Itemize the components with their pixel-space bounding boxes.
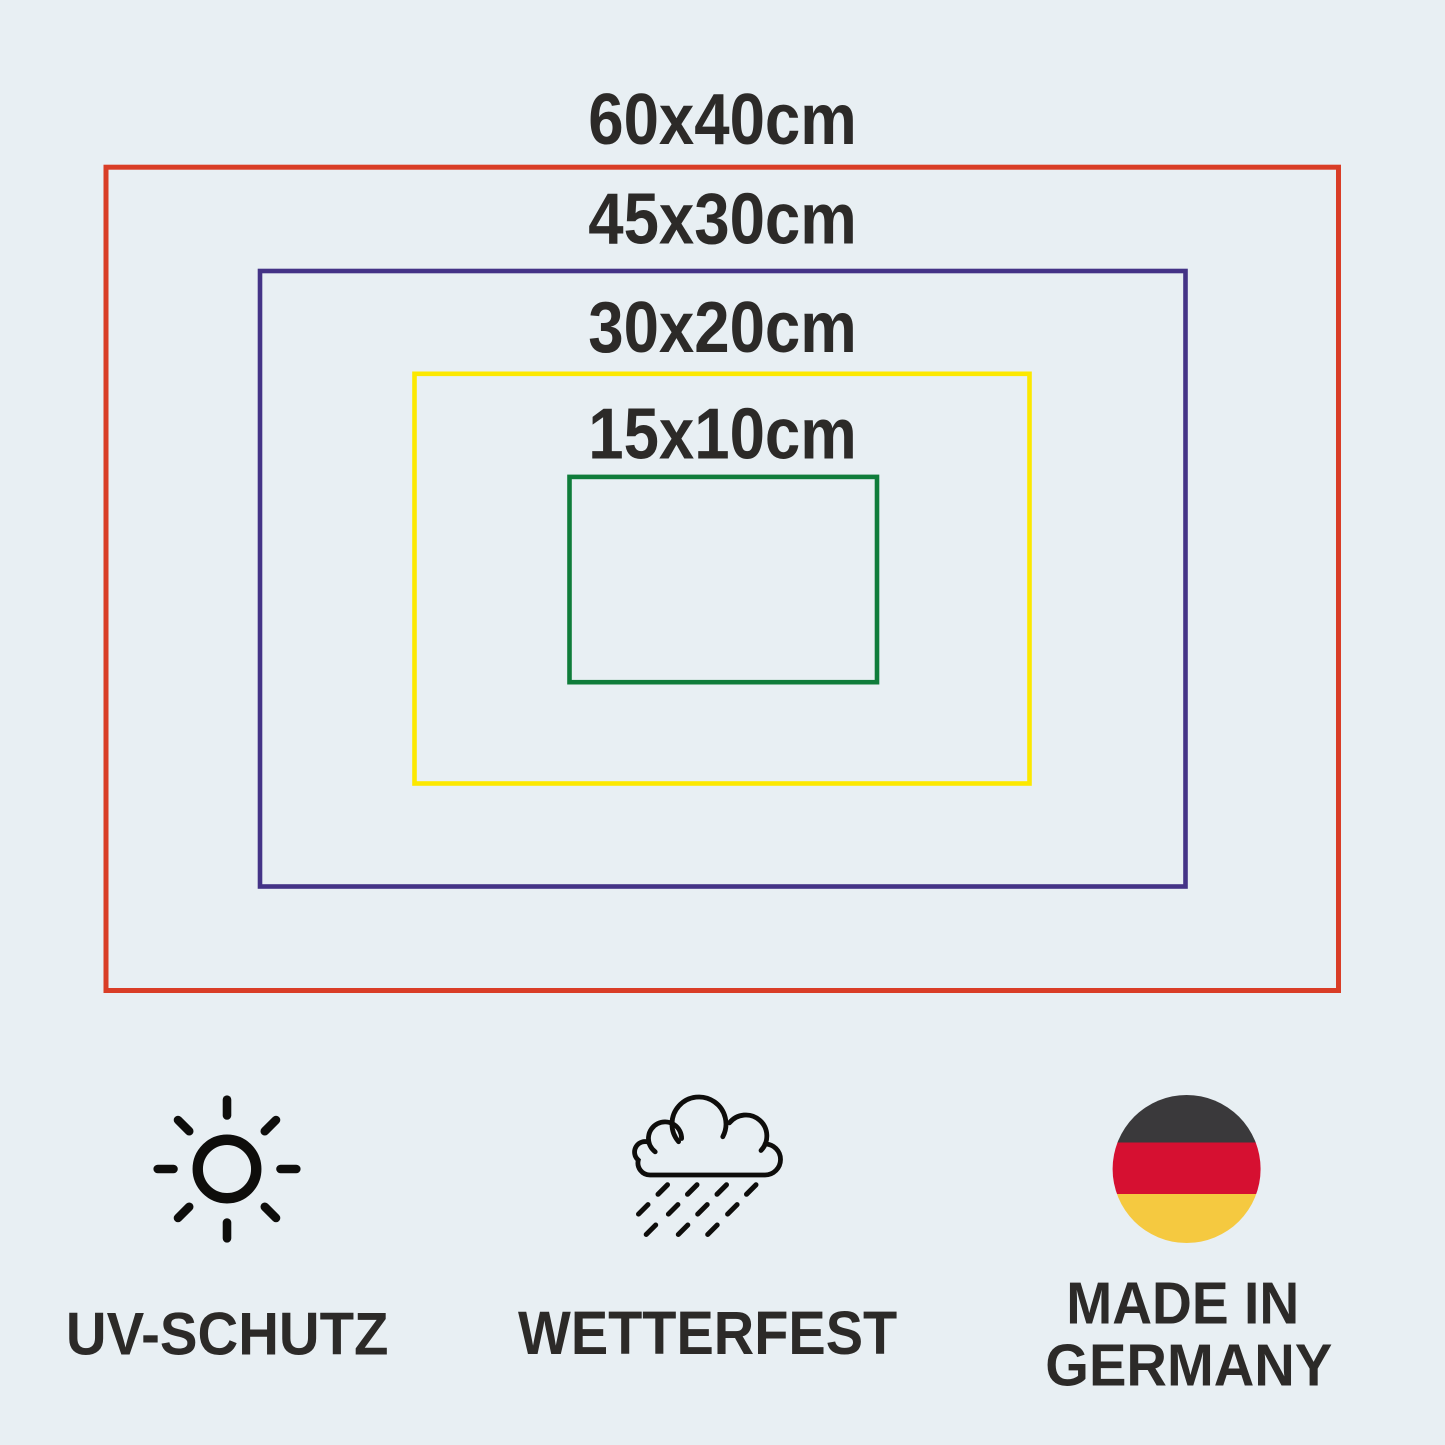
svg-text:WETTERFEST: WETTERFEST	[518, 1299, 897, 1367]
svg-text:MADE IN: MADE IN	[1066, 1271, 1299, 1337]
svg-text:UV-SCHUTZ: UV-SCHUTZ	[66, 1301, 389, 1368]
svg-text:30x20cm: 30x20cm	[588, 288, 857, 368]
svg-text:15x10cm: 15x10cm	[588, 395, 857, 475]
svg-text:60x40cm: 60x40cm	[588, 80, 857, 160]
svg-text:GERMANY: GERMANY	[1045, 1332, 1332, 1399]
svg-text:45x30cm: 45x30cm	[588, 180, 857, 260]
